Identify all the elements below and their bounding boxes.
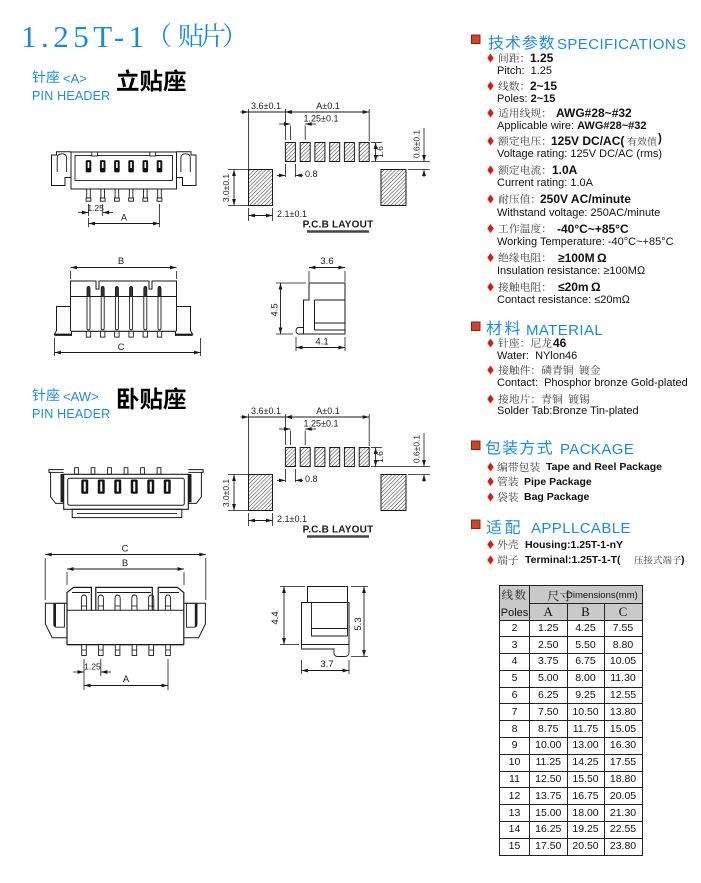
svg-text:P.C.B LAYOUT: P.C.B LAYOUT (303, 525, 374, 536)
svg-text:A: A (123, 674, 130, 685)
svg-text:P.C.B LAYOUT: P.C.B LAYOUT (303, 220, 374, 231)
svg-text:3.6: 3.6 (320, 256, 333, 267)
svg-text:1.25: 1.25 (84, 662, 101, 672)
svg-text:4.4: 4.4 (270, 611, 281, 624)
svg-text:B: B (122, 558, 128, 569)
svg-text:4.5: 4.5 (270, 303, 281, 316)
svg-text:3.7: 3.7 (320, 659, 333, 670)
svg-text:A±0.1: A±0.1 (316, 101, 339, 111)
svg-text:3.0±0.1: 3.0±0.1 (221, 479, 231, 508)
svg-text:1.6: 1.6 (375, 146, 385, 158)
svg-text:1.25: 1.25 (87, 203, 104, 213)
svg-text:3.0±0.1: 3.0±0.1 (221, 174, 231, 203)
svg-text:B: B (118, 256, 124, 267)
svg-text:0.6±0.1: 0.6±0.1 (412, 130, 422, 159)
svg-text:2.1±0.1: 2.1±0.1 (277, 514, 307, 524)
svg-text:3.6±0.1: 3.6±0.1 (251, 406, 281, 416)
svg-text:5.3: 5.3 (353, 617, 364, 630)
svg-text:C: C (118, 342, 125, 353)
svg-text:2.1±0.1: 2.1±0.1 (277, 209, 307, 219)
svg-text:0.8: 0.8 (305, 474, 318, 484)
svg-text:1.25±0.1: 1.25±0.1 (304, 419, 339, 429)
svg-text:C: C (122, 544, 129, 555)
svg-text:1.25±0.1: 1.25±0.1 (304, 114, 339, 124)
svg-text:3.6±0.1: 3.6±0.1 (251, 101, 281, 111)
svg-text:0.6±0.1: 0.6±0.1 (412, 435, 422, 464)
svg-text:4.1: 4.1 (315, 337, 328, 348)
svg-text:A: A (121, 213, 127, 223)
svg-text:0.8: 0.8 (305, 169, 318, 179)
svg-text:1.6: 1.6 (375, 451, 385, 463)
svg-text:A±0.1: A±0.1 (316, 406, 339, 416)
